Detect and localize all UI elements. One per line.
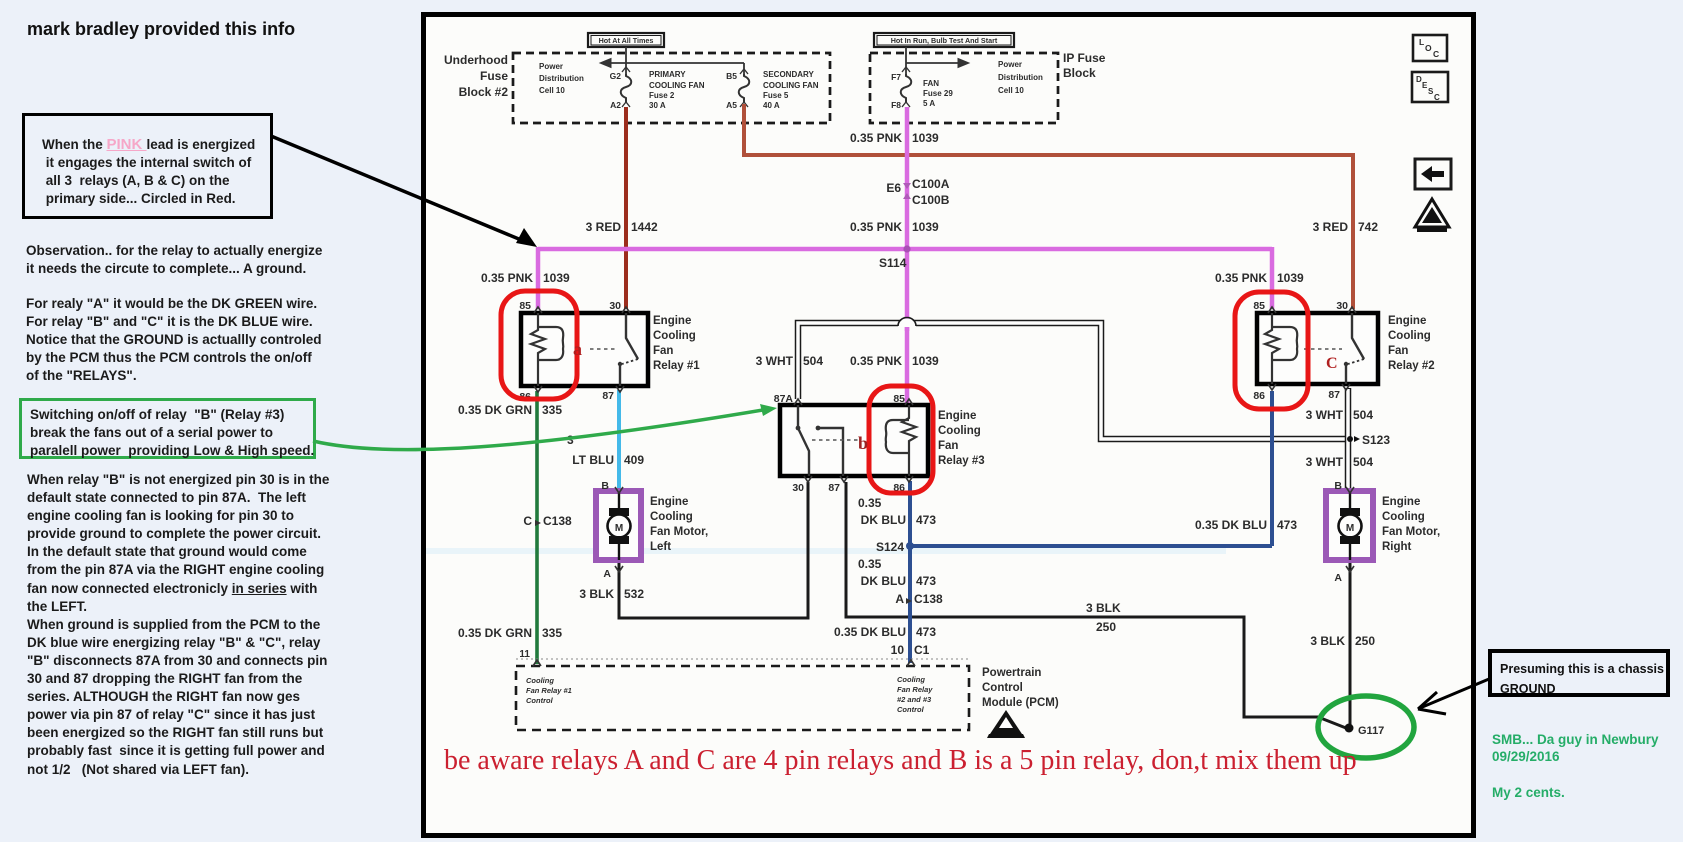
svg-text:C1: C1 bbox=[914, 643, 930, 657]
svg-text:3 BLK: 3 BLK bbox=[1086, 601, 1121, 615]
svg-text:0.35: 0.35 bbox=[858, 557, 882, 571]
svg-text:C100B: C100B bbox=[912, 193, 950, 207]
svg-text:532: 532 bbox=[624, 587, 644, 601]
svg-text:11: 11 bbox=[519, 649, 530, 660]
svg-text:Distribution: Distribution bbox=[539, 74, 584, 83]
svg-text:Cooling: Cooling bbox=[653, 330, 696, 342]
svg-text:Engine: Engine bbox=[653, 315, 691, 327]
svg-text:1442: 1442 bbox=[631, 220, 658, 234]
svg-text:A2: A2 bbox=[610, 100, 621, 110]
svg-text:0.35: 0.35 bbox=[858, 496, 882, 510]
svg-text:Power: Power bbox=[998, 60, 1022, 69]
svg-text:Underhood: Underhood bbox=[444, 53, 508, 67]
svg-text:1039: 1039 bbox=[912, 354, 939, 368]
svg-text:Fan Relay #1: Fan Relay #1 bbox=[526, 686, 572, 695]
svg-text:Cooling: Cooling bbox=[897, 675, 925, 684]
svg-text:Module (PCM): Module (PCM) bbox=[982, 697, 1059, 709]
svg-text:C: C bbox=[1326, 355, 1338, 372]
svg-text:Control: Control bbox=[897, 705, 925, 714]
svg-text:C: C bbox=[1434, 93, 1440, 102]
svg-text:0.35 PNK: 0.35 PNK bbox=[481, 271, 533, 285]
svg-text:Cooling: Cooling bbox=[938, 425, 981, 437]
svg-text:409: 409 bbox=[624, 453, 644, 467]
svg-text:0.35 DK GRN: 0.35 DK GRN bbox=[458, 626, 532, 640]
svg-text:C: C bbox=[523, 514, 532, 528]
svg-text:0.35 DK GRN: 0.35 DK GRN bbox=[458, 403, 532, 417]
svg-text:85: 85 bbox=[1253, 300, 1265, 312]
svg-text:473: 473 bbox=[916, 513, 936, 527]
svg-text:A: A bbox=[1334, 572, 1342, 584]
svg-text:5 A: 5 A bbox=[923, 99, 935, 108]
svg-text:Cooling: Cooling bbox=[650, 511, 693, 523]
svg-text:Distribution: Distribution bbox=[998, 73, 1043, 82]
svg-text:B: B bbox=[601, 480, 609, 492]
svg-text:Fan Relay: Fan Relay bbox=[897, 685, 933, 694]
svg-text:Fan Motor,: Fan Motor, bbox=[650, 526, 708, 538]
svg-text:335: 335 bbox=[542, 403, 562, 417]
svg-text:473: 473 bbox=[916, 574, 936, 588]
svg-text:Engine: Engine bbox=[1388, 315, 1426, 327]
svg-text:Relay #1: Relay #1 bbox=[653, 360, 700, 372]
svg-text:Right: Right bbox=[1382, 541, 1412, 553]
svg-text:C138: C138 bbox=[543, 514, 572, 528]
svg-text:F8: F8 bbox=[891, 100, 901, 110]
svg-text:L: L bbox=[1419, 37, 1424, 47]
svg-text:504: 504 bbox=[803, 354, 823, 368]
svg-text:#2 and #3: #2 and #3 bbox=[897, 695, 932, 704]
svg-text:Fuse 5: Fuse 5 bbox=[763, 91, 789, 100]
svg-text:Control: Control bbox=[982, 682, 1023, 694]
svg-text:504: 504 bbox=[1353, 455, 1373, 469]
svg-text:30: 30 bbox=[1336, 300, 1348, 312]
svg-text:0.35 PNK: 0.35 PNK bbox=[1215, 271, 1267, 285]
svg-text:87: 87 bbox=[828, 482, 840, 494]
svg-text:SECONDARY: SECONDARY bbox=[763, 70, 814, 79]
svg-text:Fuse: Fuse bbox=[480, 69, 508, 83]
svg-text:0.35 PNK: 0.35 PNK bbox=[850, 220, 902, 234]
svg-text:IP Fuse: IP Fuse bbox=[1063, 51, 1106, 65]
svg-text:87: 87 bbox=[1328, 389, 1340, 401]
svg-text:Block: Block bbox=[1063, 66, 1096, 80]
svg-text:Control: Control bbox=[526, 696, 554, 705]
svg-text:PRIMARY: PRIMARY bbox=[649, 70, 686, 79]
svg-text:B5: B5 bbox=[726, 71, 737, 81]
svg-text:504: 504 bbox=[1353, 408, 1373, 422]
svg-text:S123: S123 bbox=[1362, 433, 1390, 447]
svg-text:1039: 1039 bbox=[1277, 271, 1304, 285]
svg-text:Cooling: Cooling bbox=[1382, 511, 1425, 523]
svg-text:Cell 10: Cell 10 bbox=[998, 86, 1024, 95]
svg-text:30 A: 30 A bbox=[649, 101, 666, 110]
svg-text:O: O bbox=[1425, 43, 1432, 53]
svg-text:M: M bbox=[1346, 523, 1354, 534]
svg-text:Left: Left bbox=[650, 541, 671, 553]
svg-text:Powertrain: Powertrain bbox=[982, 667, 1041, 679]
svg-text:0.35 DK BLU: 0.35 DK BLU bbox=[1195, 518, 1267, 532]
svg-text:b: b bbox=[858, 433, 868, 453]
svg-text:473: 473 bbox=[1277, 518, 1297, 532]
svg-text:COOLING FAN: COOLING FAN bbox=[649, 81, 705, 90]
svg-text:0.35 PNK: 0.35 PNK bbox=[850, 354, 902, 368]
svg-text:473: 473 bbox=[916, 625, 936, 639]
svg-text:Hot In Run, Bulb Test And Star: Hot In Run, Bulb Test And Start bbox=[891, 36, 998, 45]
svg-text:E6: E6 bbox=[886, 181, 901, 195]
svg-text:3 WHT: 3 WHT bbox=[756, 354, 794, 368]
svg-text:40 A: 40 A bbox=[763, 101, 780, 110]
svg-text:M: M bbox=[615, 523, 623, 534]
svg-text:A5: A5 bbox=[726, 100, 737, 110]
svg-text:FAN: FAN bbox=[923, 79, 939, 88]
svg-text:DK BLU: DK BLU bbox=[861, 574, 906, 588]
svg-text:Fan: Fan bbox=[938, 440, 958, 452]
svg-text:3 BLK: 3 BLK bbox=[1310, 634, 1345, 648]
svg-text:Power: Power bbox=[539, 62, 563, 71]
svg-text:Fuse 2: Fuse 2 bbox=[649, 91, 675, 100]
svg-text:F7: F7 bbox=[891, 72, 901, 82]
svg-text:Relay #2: Relay #2 bbox=[1388, 360, 1435, 372]
svg-text:Fan: Fan bbox=[653, 345, 673, 357]
svg-text:C100A: C100A bbox=[912, 177, 950, 191]
svg-text:a: a bbox=[573, 339, 582, 359]
svg-text:B: B bbox=[1334, 480, 1342, 492]
svg-text:Fuse 29: Fuse 29 bbox=[923, 89, 953, 98]
svg-text:0.35 PNK: 0.35 PNK bbox=[850, 131, 902, 145]
svg-text:1039: 1039 bbox=[912, 220, 939, 234]
svg-text:250: 250 bbox=[1096, 620, 1116, 634]
svg-text:S114: S114 bbox=[879, 256, 907, 270]
svg-text:Engine: Engine bbox=[650, 496, 688, 508]
svg-text:Engine: Engine bbox=[1382, 496, 1420, 508]
svg-text:LT BLU: LT BLU bbox=[572, 453, 614, 467]
svg-text:S124: S124 bbox=[876, 540, 904, 554]
svg-text:DK BLU: DK BLU bbox=[861, 513, 906, 527]
svg-text:Engine: Engine bbox=[938, 410, 976, 422]
svg-text:87: 87 bbox=[602, 390, 614, 402]
svg-text:3 WHT: 3 WHT bbox=[1306, 455, 1344, 469]
svg-text:Fan: Fan bbox=[1388, 345, 1408, 357]
svg-text:86: 86 bbox=[1253, 390, 1265, 402]
svg-text:A: A bbox=[895, 592, 904, 606]
svg-text:Hot At All Times: Hot At All Times bbox=[599, 36, 654, 45]
svg-text:Block #2: Block #2 bbox=[459, 85, 509, 99]
svg-text:Cooling: Cooling bbox=[1388, 330, 1431, 342]
svg-text:742: 742 bbox=[1358, 220, 1378, 234]
svg-text:Relay #3: Relay #3 bbox=[938, 455, 985, 467]
svg-text:C: C bbox=[1433, 49, 1439, 59]
svg-text:G117: G117 bbox=[1358, 725, 1384, 737]
svg-text:be aware relays A and C are 4: be aware relays A and C are 4 pin relays… bbox=[444, 745, 1357, 776]
svg-text:30: 30 bbox=[792, 482, 804, 494]
svg-text:85: 85 bbox=[519, 300, 531, 312]
svg-text:C138: C138 bbox=[914, 592, 943, 606]
svg-text:87A: 87A bbox=[774, 393, 794, 405]
svg-text:G2: G2 bbox=[610, 71, 622, 81]
svg-text:250: 250 bbox=[1355, 634, 1375, 648]
svg-text:A: A bbox=[603, 568, 611, 580]
svg-text:30: 30 bbox=[609, 300, 621, 312]
svg-text:85: 85 bbox=[893, 393, 905, 405]
svg-text:10: 10 bbox=[891, 643, 905, 657]
svg-text:0.35 DK BLU: 0.35 DK BLU bbox=[834, 625, 906, 639]
svg-text:1039: 1039 bbox=[543, 271, 570, 285]
svg-text:3 WHT: 3 WHT bbox=[1306, 408, 1344, 422]
svg-text:1039: 1039 bbox=[912, 131, 939, 145]
svg-text:3 RED: 3 RED bbox=[1313, 220, 1349, 234]
svg-text:Fan Motor,: Fan Motor, bbox=[1382, 526, 1440, 538]
svg-text:335: 335 bbox=[542, 626, 562, 640]
svg-text:3 RED: 3 RED bbox=[586, 220, 622, 234]
svg-text:Cell 10: Cell 10 bbox=[539, 86, 565, 95]
svg-text:COOLING FAN: COOLING FAN bbox=[763, 81, 819, 90]
svg-text:Cooling: Cooling bbox=[526, 676, 554, 685]
svg-text:3 BLK: 3 BLK bbox=[579, 587, 614, 601]
